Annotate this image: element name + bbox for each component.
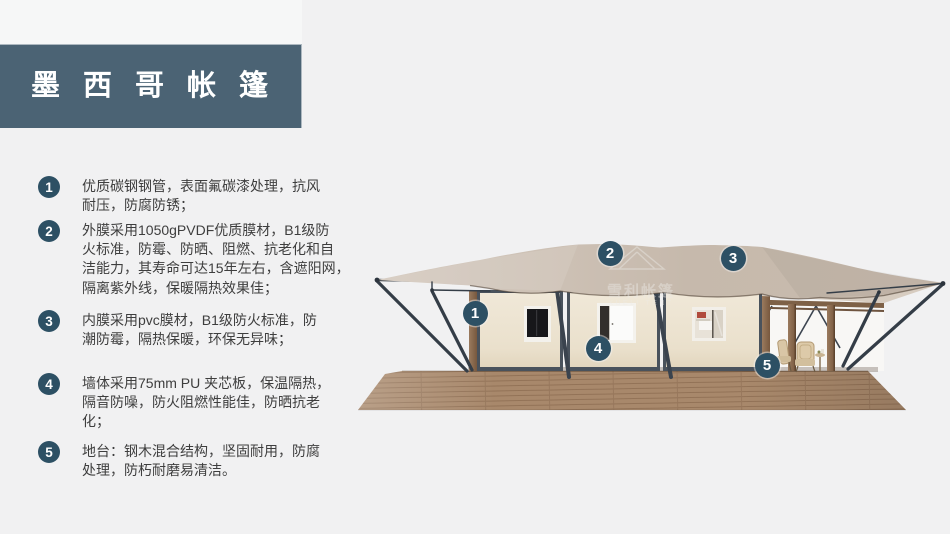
callout-badge-5: 5 — [755, 353, 780, 378]
feature-text-line: 耐压，防腐防锈； — [82, 196, 350, 215]
window-3 — [692, 307, 726, 341]
slide: 墨西哥帐篷 1优质碳钢钢管，表面氟碳漆处理，抗风耐压，防腐防锈；2外膜采用105… — [0, 0, 950, 534]
feature-text-line: 优质碳钢钢管，表面氟碳漆处理，抗风 — [82, 177, 350, 196]
feature-text-line: 化； — [82, 412, 350, 431]
window-1 — [524, 306, 551, 342]
feature-number-badge: 2 — [38, 220, 60, 242]
feature-text-line: 潮防霉，隔热保暖，环保无异味； — [82, 330, 350, 349]
feature-list: 1优质碳钢钢管，表面氟碳漆处理，抗风耐压，防腐防锈；2外膜采用1050gPVDF… — [0, 0, 360, 534]
tent-illustration-wrap: 雪利帐篷 XUELI TENT — [355, 235, 950, 420]
feature-text: 内膜采用pvc膜材，B1级防火标准，防潮防霉，隔热保暖，环保无异味； — [82, 311, 350, 349]
feature-text-line: 火标准，防霉、防晒、阻燃、抗老化和自 — [82, 240, 350, 259]
callout-badge-2: 2 — [598, 241, 623, 266]
deck — [358, 371, 906, 410]
feature-number-badge: 1 — [38, 176, 60, 198]
feature-text-line: 地台：钢木混合结构，坚固耐用，防腐 — [82, 442, 350, 461]
feature-text: 地台：钢木混合结构，坚固耐用，防腐处理，防朽耐磨易清洁。 — [82, 442, 350, 480]
feature-number-badge: 5 — [38, 441, 60, 463]
feature-text-line: 内膜采用pvc膜材，B1级防火标准，防 — [82, 311, 350, 330]
feature-text-line: 洁能力，其寿命可达15年左右，含遮阳网， — [82, 259, 350, 278]
feature-text-line: 处理，防朽耐磨易清洁。 — [82, 461, 350, 480]
feature-text-line: 隔离紫外线，保暖隔热效果佳； — [82, 279, 350, 298]
feature-text: 优质碳钢钢管，表面氟碳漆处理，抗风耐压，防腐防锈； — [82, 177, 350, 215]
feature-number-badge: 3 — [38, 310, 60, 332]
feature-text: 墙体采用75mm PU 夹芯板，保温隔热，隔音防噪，防火阻燃性能佳，防晒抗老化； — [82, 374, 350, 432]
feature-text: 外膜采用1050gPVDF优质膜材，B1级防火标准，防霉、防晒、阻燃、抗老化和自… — [82, 221, 350, 298]
feature-text-line: 隔音防噪，防火阻燃性能佳，防晒抗老 — [82, 393, 350, 412]
callout-badge-4: 4 — [586, 336, 611, 361]
watermark-en: XUELI TENT — [608, 300, 673, 307]
feature-number-badge: 4 — [38, 373, 60, 395]
callout-badge-1: 1 — [463, 301, 488, 326]
feature-text-line: 墙体采用75mm PU 夹芯板，保温隔热， — [82, 374, 350, 393]
feature-text-line: 外膜采用1050gPVDF优质膜材，B1级防 — [82, 221, 350, 240]
tent-illustration: 雪利帐篷 XUELI TENT — [355, 235, 950, 420]
watermark-cn: 雪利帐篷 — [607, 282, 675, 300]
callout-badge-3: 3 — [721, 246, 746, 271]
